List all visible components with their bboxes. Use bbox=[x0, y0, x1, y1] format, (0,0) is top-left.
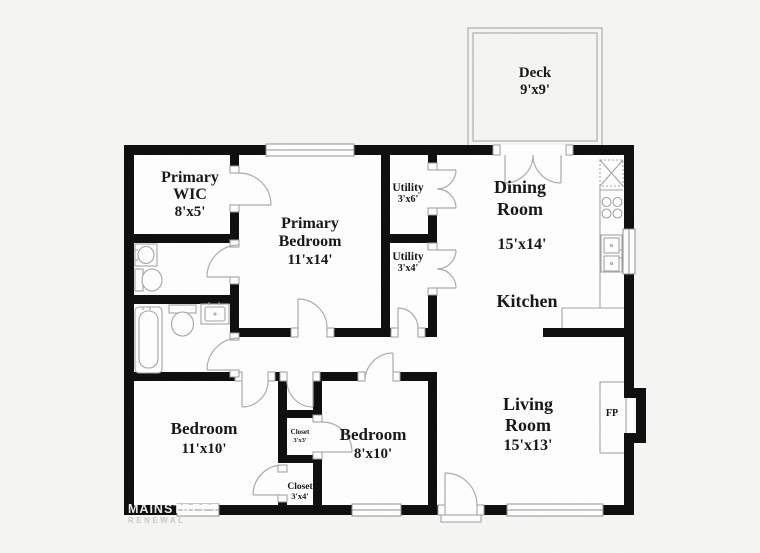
noise-overlay bbox=[0, 0, 760, 553]
floor-plan-image: Primary WIC 8'x5' Primary Bedroom 11'x14… bbox=[0, 0, 760, 553]
floor-plan-page: Primary WIC 8'x5' Primary Bedroom 11'x14… bbox=[0, 0, 760, 553]
